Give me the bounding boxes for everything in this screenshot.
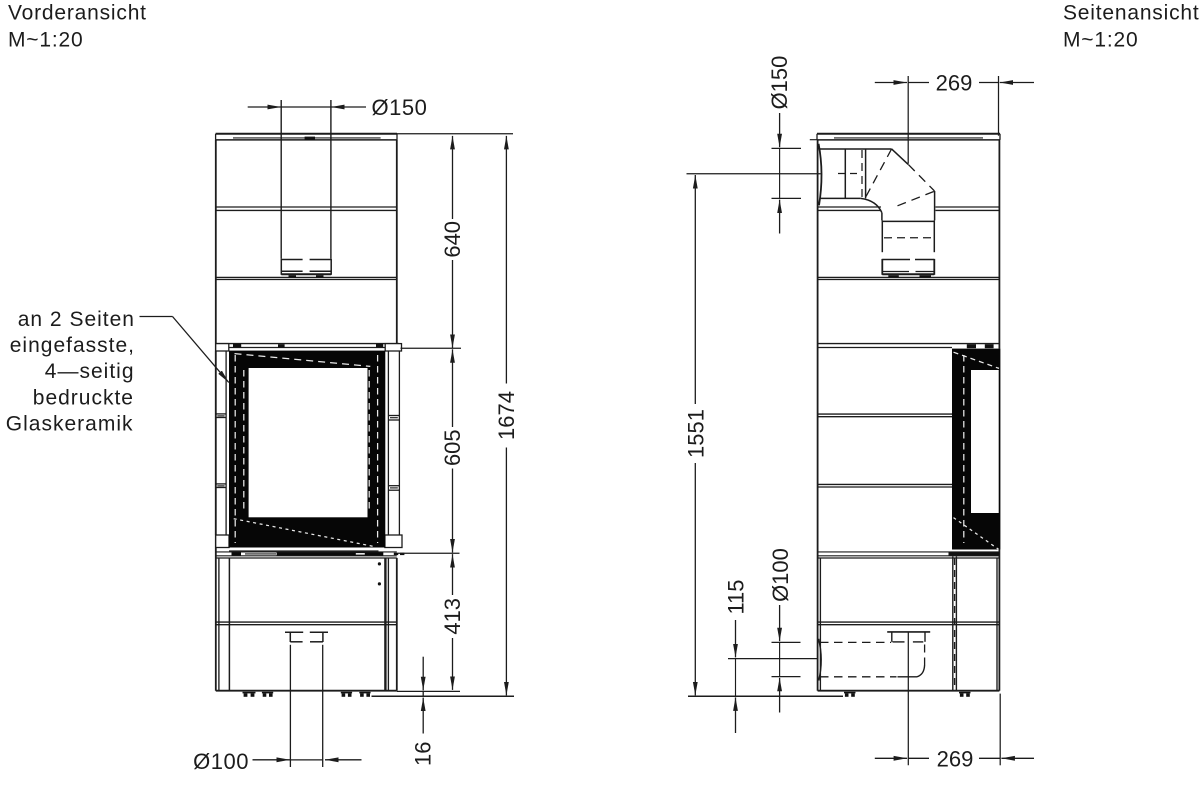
svg-text:Ø150: Ø150 bbox=[372, 95, 428, 120]
svg-text:640: 640 bbox=[440, 221, 465, 258]
svg-text:16: 16 bbox=[411, 741, 436, 765]
svg-text:eingefasste,: eingefasste, bbox=[10, 334, 135, 357]
svg-text:Seitenansicht: Seitenansicht bbox=[1063, 2, 1199, 25]
svg-text:269: 269 bbox=[936, 71, 973, 96]
svg-text:Vorderansicht: Vorderansicht bbox=[8, 2, 147, 25]
svg-text:Glaskeramik: Glaskeramik bbox=[6, 413, 134, 436]
svg-text:M~1:20: M~1:20 bbox=[1063, 29, 1138, 52]
svg-text:bedruckte: bedruckte bbox=[33, 386, 134, 409]
svg-text:M~1:20: M~1:20 bbox=[8, 29, 83, 52]
svg-text:Ø150: Ø150 bbox=[767, 56, 792, 110]
svg-text:1674: 1674 bbox=[494, 391, 519, 440]
svg-text:115: 115 bbox=[723, 579, 748, 614]
svg-text:605: 605 bbox=[440, 429, 465, 466]
svg-text:269: 269 bbox=[937, 746, 974, 771]
svg-text:Ø100: Ø100 bbox=[193, 749, 249, 774]
svg-text:Ø100: Ø100 bbox=[768, 548, 793, 602]
svg-text:4—seitig: 4—seitig bbox=[45, 360, 135, 383]
svg-text:an 2 Seiten: an 2 Seiten bbox=[18, 308, 135, 331]
svg-text:1551: 1551 bbox=[683, 409, 708, 458]
svg-text:413: 413 bbox=[440, 598, 465, 635]
